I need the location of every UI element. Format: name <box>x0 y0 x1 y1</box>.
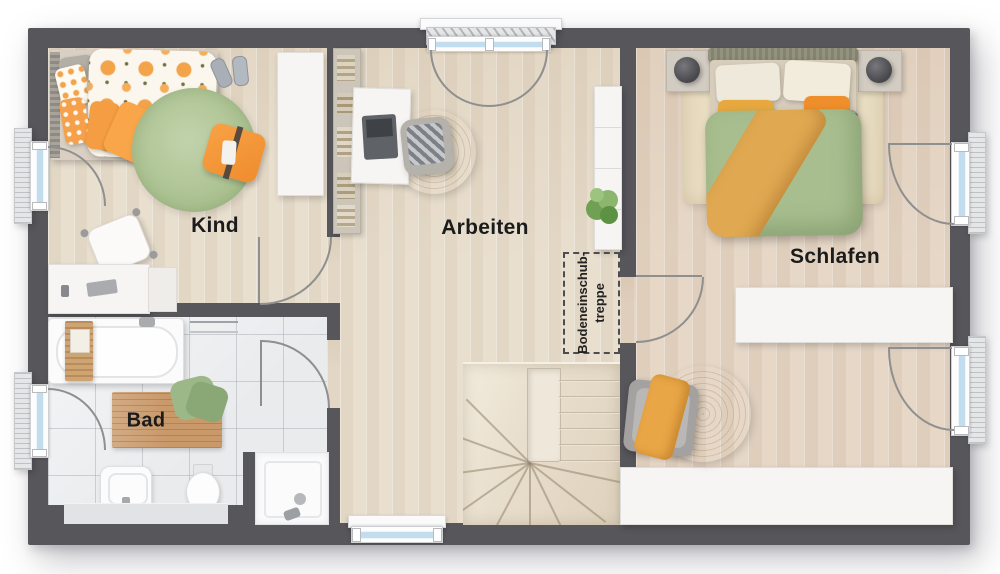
bad-towel-green <box>168 374 230 424</box>
arbeiten-laptop <box>362 114 399 160</box>
schlafen-wardrobe-top <box>735 287 953 343</box>
kind-desk-extension <box>148 267 177 312</box>
attic-hatch-box: Bodeneinschub- treppe <box>563 252 620 354</box>
schlafen-door-leaf <box>636 275 702 277</box>
bad-shower <box>255 452 329 525</box>
stair-window <box>351 526 443 543</box>
bad-vanity-counter <box>64 503 228 524</box>
stair-void <box>527 368 561 462</box>
bad-door-leaf <box>260 340 262 406</box>
bad-window <box>30 384 49 458</box>
attic-hatch-label: Bodeneinschub- treppe <box>575 252 609 354</box>
schlafen-window1-shutter <box>968 132 986 234</box>
schlafen-armchair <box>622 379 699 458</box>
schlafen-duvet <box>705 109 863 238</box>
schlafen-window2-shutter <box>968 336 986 444</box>
arbeiten-chair <box>399 116 455 177</box>
bad-shower-divider-wall <box>243 452 255 523</box>
kind-desk <box>48 264 150 314</box>
staircase <box>463 362 620 525</box>
arbeiten-plant <box>584 188 624 228</box>
bad-shower-drain <box>294 493 306 505</box>
bad-towel-rail <box>190 321 238 333</box>
schlafen-wardrobe-bottom <box>620 467 953 525</box>
kind-wardrobe <box>277 52 324 196</box>
bad-wall-stub-right <box>228 505 243 523</box>
schlafen-lamp-right <box>866 57 892 83</box>
room-label-schlafen: Schlafen <box>790 245 880 269</box>
arbeiten-chair-pillow <box>406 122 446 166</box>
schlafen-duvet-orange-throw <box>705 109 830 238</box>
schlafen-pillow-left <box>715 62 781 103</box>
room-label-arbeiten: Arbeiten <box>441 216 529 240</box>
kind-desk-keyboard <box>86 279 118 297</box>
kind-window <box>30 141 49 211</box>
room-label-kind: Kind <box>191 214 239 238</box>
schlafen-lamp-left <box>674 57 700 83</box>
bad-wall-stub-left <box>48 505 64 523</box>
kind-slipper-right <box>231 55 249 86</box>
bad-tub-faucet <box>139 317 155 327</box>
room-label-bad: Bad <box>127 410 166 433</box>
bad-bathtub <box>48 318 184 384</box>
floor-plan: Bodeneinschub- treppe <box>0 0 1000 574</box>
bad-tub-caddy <box>65 321 93 381</box>
door-gap-schlafen <box>620 277 636 343</box>
kind-door-leaf <box>258 237 260 303</box>
